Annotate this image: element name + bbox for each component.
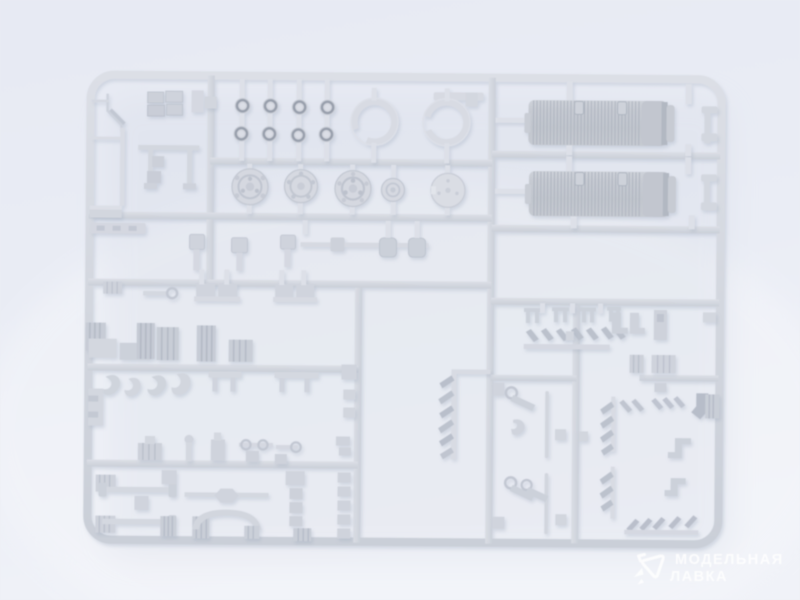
svg-text:МОДЕЛЬНАЯ: МОДЕЛЬНАЯ (675, 552, 784, 568)
svg-text:ЛАВКА: ЛАВКА (670, 569, 728, 585)
